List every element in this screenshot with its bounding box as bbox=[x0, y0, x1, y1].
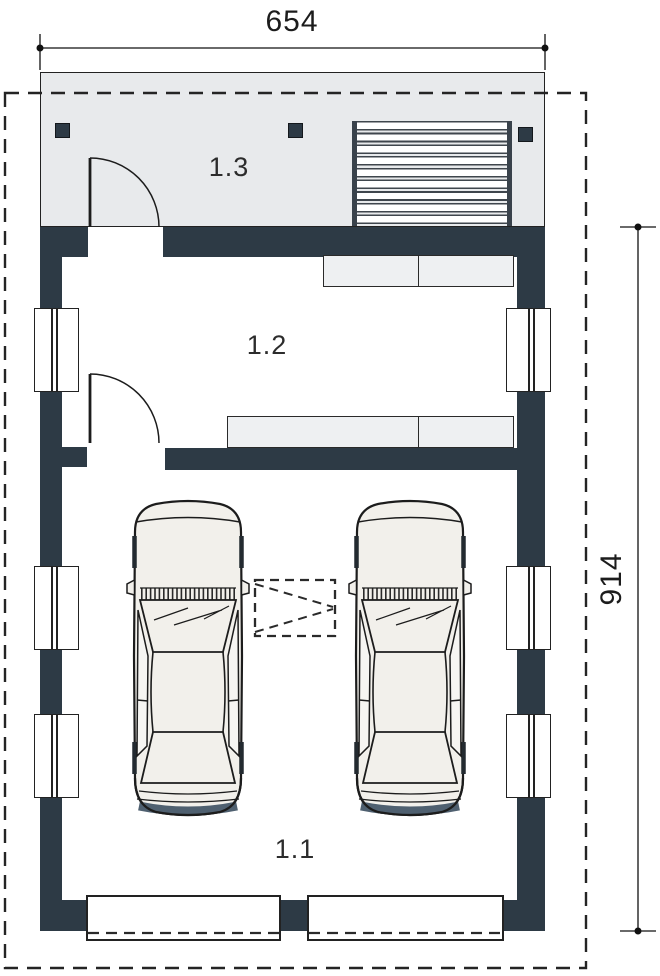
car-drawing bbox=[349, 501, 471, 815]
window-symbol-icon bbox=[34, 566, 79, 650]
dashed-hatch-opening-icon bbox=[255, 580, 335, 636]
wall-top-right bbox=[163, 227, 545, 257]
car-top-view-icon bbox=[126, 494, 250, 822]
window-symbol-icon bbox=[506, 714, 551, 798]
wall-mid bbox=[165, 448, 517, 470]
room-label-1-1: 1.1 bbox=[255, 834, 335, 864]
shelf-cell bbox=[418, 416, 514, 448]
door-swing-arc-icon bbox=[90, 374, 159, 443]
slat-field bbox=[357, 121, 507, 224]
room-label-1-3: 1.3 bbox=[189, 152, 269, 182]
window-symbol-icon bbox=[506, 308, 551, 392]
shelf-cell bbox=[323, 255, 419, 287]
porch-post bbox=[518, 127, 533, 142]
room-label-1-2: 1.2 bbox=[227, 330, 307, 360]
garage-door-left bbox=[86, 895, 281, 941]
window-symbol-icon bbox=[34, 714, 79, 798]
wall-bottom-left bbox=[40, 900, 86, 931]
porch-post bbox=[288, 123, 303, 138]
garage-door-right bbox=[307, 895, 504, 941]
shelf-top bbox=[323, 255, 515, 287]
wall-bottom-pier bbox=[281, 900, 307, 931]
shelf-cell bbox=[418, 255, 514, 287]
floor-plan-canvas: 654 914 1.3 1.2 1.1 bbox=[0, 0, 660, 976]
slatted-screen-icon bbox=[352, 121, 512, 226]
shelf-cell bbox=[227, 416, 419, 448]
window-symbol-icon bbox=[34, 308, 79, 392]
car-top-view-icon bbox=[348, 494, 472, 822]
wall-mid-jamb bbox=[62, 447, 87, 467]
dimension-height-label: 914 bbox=[594, 548, 630, 610]
slat-rail-right bbox=[507, 121, 512, 226]
wall-bottom-right bbox=[504, 900, 545, 931]
window-symbol-icon bbox=[506, 566, 551, 650]
shelf-bottom bbox=[227, 416, 515, 448]
dimension-width-label: 654 bbox=[232, 4, 352, 40]
car-drawing bbox=[127, 501, 249, 815]
porch-post bbox=[55, 123, 70, 138]
